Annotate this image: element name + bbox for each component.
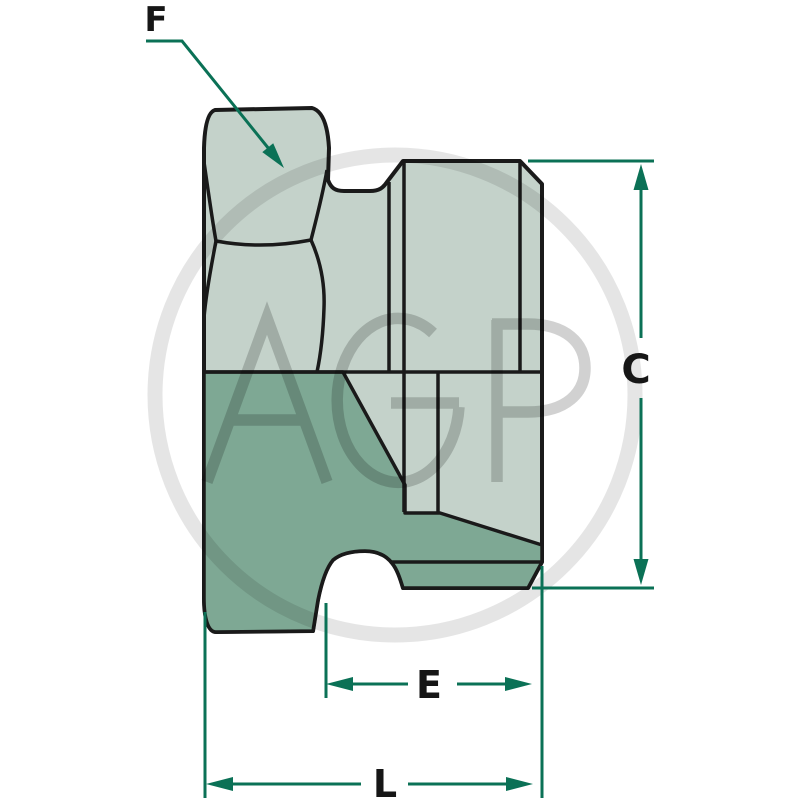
c-arrowhead-down	[634, 559, 649, 585]
dimension-label-e: E	[416, 663, 442, 707]
dimension-label-c: C	[621, 347, 650, 393]
watermark-letters: AGP	[192, 297, 601, 530]
plug-cross-section-diagram: AGP F C E	[0, 0, 800, 800]
l-arrowhead-right	[506, 777, 533, 791]
e-arrowhead-right	[505, 677, 532, 691]
e-arrowhead-left	[326, 677, 353, 691]
l-arrowhead-left	[206, 777, 233, 791]
c-arrowhead-up	[634, 164, 649, 190]
dimension-label-l: L	[373, 762, 397, 800]
dimension-label-f: F	[144, 0, 167, 40]
